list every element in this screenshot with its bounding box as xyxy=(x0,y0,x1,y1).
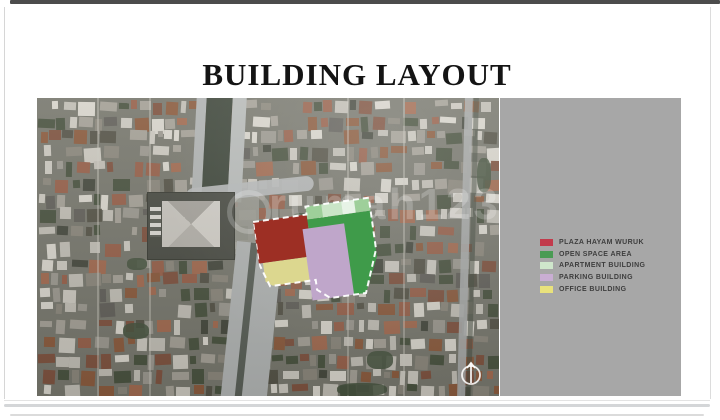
rooftop xyxy=(166,102,179,116)
rooftop xyxy=(278,130,283,141)
rooftop xyxy=(99,386,113,396)
legend-swatch-parking xyxy=(540,274,553,281)
rooftop xyxy=(391,371,398,378)
rooftop xyxy=(134,162,142,177)
rooftop xyxy=(113,179,130,191)
rooftop xyxy=(272,354,283,361)
legend-item-open-space: OPEN SPACE AREA xyxy=(540,249,645,261)
legend-panel: PLAZA HAYAM WURUKOPEN SPACE AREAAPARTMEN… xyxy=(500,98,681,396)
rooftop xyxy=(113,370,130,383)
rooftop xyxy=(130,130,147,140)
rooftop xyxy=(359,320,364,332)
rooftop xyxy=(119,103,129,109)
rooftop xyxy=(394,288,410,299)
rooftop xyxy=(180,130,194,137)
rooftop xyxy=(373,369,381,376)
rooftop xyxy=(170,163,180,173)
rooftop xyxy=(134,370,140,381)
rooftop xyxy=(99,369,112,376)
rooftop xyxy=(46,195,56,209)
rooftop xyxy=(414,163,425,175)
rooftop xyxy=(427,131,435,138)
mall-annex xyxy=(150,207,161,237)
rooftop xyxy=(126,273,133,280)
site-boundary-dashed-outline xyxy=(251,191,389,315)
rooftop xyxy=(59,337,75,353)
rooftop xyxy=(40,209,56,222)
rooftop xyxy=(203,337,209,345)
legend-label: PLAZA HAYAM WURUK xyxy=(559,239,644,246)
rooftop xyxy=(391,146,407,153)
rooftop xyxy=(129,384,142,396)
rooftop xyxy=(104,244,120,257)
rooftop xyxy=(273,337,284,350)
rooftop xyxy=(310,355,316,366)
rooftop xyxy=(290,148,297,160)
rooftop xyxy=(41,273,49,284)
legend-label: APARTMENT BUILDING xyxy=(559,262,645,269)
rooftop xyxy=(164,130,172,139)
rooftop xyxy=(427,242,443,254)
rooftop xyxy=(104,146,120,158)
legend-label: OFFICE BUILDING xyxy=(559,286,626,293)
rooftop xyxy=(165,119,176,129)
rooftop xyxy=(40,288,50,298)
rooftop xyxy=(320,321,331,334)
rooftop xyxy=(132,227,138,235)
rooftop xyxy=(400,354,412,366)
rooftop xyxy=(124,288,136,298)
rooftop xyxy=(427,302,441,311)
rooftop xyxy=(199,273,209,283)
rooftop xyxy=(330,371,346,381)
rooftop xyxy=(358,148,367,163)
rooftop xyxy=(361,162,375,175)
rooftop xyxy=(211,288,224,301)
rooftop xyxy=(360,372,371,383)
rooftop xyxy=(134,355,147,366)
rooftop xyxy=(53,288,61,302)
rooftop xyxy=(210,303,216,312)
rooftop xyxy=(318,355,325,368)
mall-roof xyxy=(162,201,220,247)
rooftop xyxy=(357,303,364,309)
rooftop xyxy=(378,130,388,137)
rooftop xyxy=(112,194,126,206)
page-separator-band xyxy=(4,404,710,407)
rooftop xyxy=(405,242,412,254)
rooftop xyxy=(173,130,179,141)
satellite-map: rumah123 xyxy=(37,98,499,396)
rooftop xyxy=(59,207,70,219)
rooftop xyxy=(270,384,276,393)
rooftop xyxy=(432,117,440,125)
rooftop xyxy=(176,386,190,396)
rooftop xyxy=(420,274,435,283)
rooftop xyxy=(43,370,56,385)
rooftop xyxy=(207,372,223,380)
rooftop xyxy=(100,302,116,317)
rooftop xyxy=(181,289,191,302)
rooftop xyxy=(312,147,329,161)
rooftop xyxy=(71,260,87,268)
rooftop xyxy=(103,210,114,221)
rooftop xyxy=(483,290,492,299)
rooftop xyxy=(66,162,72,177)
rooftop xyxy=(251,132,257,143)
rooftop xyxy=(285,339,295,346)
rooftop xyxy=(421,321,428,331)
rooftop xyxy=(37,119,54,129)
rooftop xyxy=(70,117,77,128)
rooftop xyxy=(473,386,490,396)
rooftop xyxy=(194,288,209,300)
rooftop xyxy=(164,179,174,192)
rooftop xyxy=(41,301,53,308)
rooftop xyxy=(351,356,364,366)
rooftop xyxy=(200,354,215,364)
rooftop xyxy=(380,147,388,158)
vegetation-patch xyxy=(337,383,387,396)
rooftop xyxy=(44,384,51,393)
rooftop xyxy=(78,304,88,311)
rooftop xyxy=(156,370,163,385)
rooftop xyxy=(124,241,130,251)
rooftop xyxy=(104,116,117,126)
rooftop xyxy=(425,146,432,154)
rooftop xyxy=(110,288,123,302)
rooftop xyxy=(118,387,127,395)
rooftop xyxy=(56,304,63,315)
north-arrow-icon xyxy=(458,361,484,387)
rooftop xyxy=(181,101,187,113)
rooftop xyxy=(361,117,368,132)
rooftop xyxy=(323,100,332,112)
rooftop xyxy=(435,148,452,161)
rooftop xyxy=(312,336,328,351)
rooftop xyxy=(179,261,188,274)
rooftop xyxy=(77,162,90,174)
legend-item-office: OFFICE BUILDING xyxy=(540,283,645,295)
rooftop xyxy=(100,131,116,143)
rooftop xyxy=(86,227,93,236)
rooftop xyxy=(414,259,425,274)
rooftop xyxy=(271,147,288,161)
rooftop xyxy=(261,103,271,110)
rooftop xyxy=(417,130,425,143)
rooftop xyxy=(181,274,196,283)
rooftop xyxy=(166,261,175,271)
rooftop xyxy=(407,384,418,391)
rooftop xyxy=(107,162,114,172)
rooftop xyxy=(256,161,274,176)
rooftop xyxy=(283,371,299,379)
rooftop xyxy=(73,209,85,222)
legend-item-plaza: PLAZA HAYAM WURUK xyxy=(540,237,645,249)
rooftop xyxy=(427,260,437,275)
rooftop xyxy=(212,275,228,283)
rooftop xyxy=(405,102,416,114)
rooftop xyxy=(253,147,258,157)
rooftop xyxy=(311,129,322,138)
rooftop xyxy=(169,337,185,349)
rooftop xyxy=(83,178,96,190)
rooftop xyxy=(139,146,148,156)
rooftop xyxy=(78,195,91,203)
rooftop xyxy=(410,288,426,297)
rooftop xyxy=(390,336,397,351)
rooftop xyxy=(174,320,180,335)
rooftop xyxy=(41,132,48,143)
rooftop xyxy=(314,102,322,111)
rooftop xyxy=(481,260,496,272)
rooftop xyxy=(355,339,363,350)
rooftop xyxy=(490,319,499,329)
rooftop xyxy=(374,339,387,349)
rooftop xyxy=(39,227,56,234)
rooftop xyxy=(481,101,491,111)
vegetation-patch xyxy=(127,258,147,270)
rooftop xyxy=(71,226,83,236)
rooftop xyxy=(159,289,166,297)
rooftop xyxy=(192,369,204,384)
rooftop xyxy=(407,131,416,141)
rooftop xyxy=(158,130,164,136)
rooftop xyxy=(433,320,445,333)
viewer-top-bar xyxy=(10,0,720,4)
rooftop xyxy=(484,131,498,144)
rooftop xyxy=(50,273,58,285)
rooftop xyxy=(475,242,484,257)
rooftop xyxy=(439,385,446,396)
rooftop xyxy=(70,319,86,329)
rooftop xyxy=(444,160,459,169)
street-line xyxy=(97,98,99,396)
rooftop xyxy=(72,180,80,188)
rooftop xyxy=(74,130,88,145)
rooftop xyxy=(449,354,456,363)
rooftop xyxy=(56,320,66,334)
rooftop xyxy=(40,321,52,327)
rooftop xyxy=(370,147,378,158)
rooftop xyxy=(300,354,309,361)
rooftop xyxy=(78,102,95,116)
rooftop xyxy=(100,354,110,369)
rooftop xyxy=(372,116,385,130)
rooftop xyxy=(42,260,53,272)
rooftop xyxy=(441,302,448,312)
rooftop xyxy=(137,338,147,352)
rooftop xyxy=(163,162,169,171)
rooftop xyxy=(378,304,395,315)
rooftop xyxy=(388,386,396,396)
rooftop xyxy=(66,146,82,155)
rooftop xyxy=(153,146,169,156)
rooftop xyxy=(102,273,111,282)
rooftop xyxy=(362,132,373,139)
rooftop xyxy=(428,338,442,350)
page-separator-line xyxy=(4,400,710,401)
rooftop xyxy=(297,130,307,139)
rooftop xyxy=(261,131,277,143)
rooftop xyxy=(494,386,499,394)
rooftop xyxy=(292,384,308,392)
rooftop xyxy=(293,162,299,174)
rooftop xyxy=(350,161,357,170)
rooftop xyxy=(368,303,376,312)
rooftop xyxy=(43,178,51,185)
rooftop xyxy=(420,119,427,129)
rooftop xyxy=(79,117,93,128)
legend-item-parking: PARKING BUILDING xyxy=(540,272,645,284)
rooftop xyxy=(253,117,270,127)
legend-label: OPEN SPACE AREA xyxy=(559,251,632,258)
rooftop xyxy=(166,386,175,396)
rooftop xyxy=(101,194,109,209)
rooftop xyxy=(491,161,499,172)
rooftop xyxy=(114,337,125,351)
rooftop xyxy=(64,385,80,396)
rooftop xyxy=(319,370,328,378)
rooftop xyxy=(451,103,462,110)
rooftop xyxy=(56,357,69,367)
rooftop xyxy=(57,226,68,235)
rooftop xyxy=(69,356,81,367)
rooftop xyxy=(286,355,298,364)
rooftop xyxy=(201,320,208,334)
legend-item-apartment: APARTMENT BUILDING xyxy=(540,260,645,272)
rooftop xyxy=(49,130,61,140)
rooftop xyxy=(271,116,278,127)
rooftop xyxy=(328,117,342,132)
rooftop xyxy=(375,100,390,109)
vegetation-patch xyxy=(123,323,149,339)
rooftop xyxy=(437,131,445,138)
rooftop xyxy=(173,145,181,152)
rooftop xyxy=(172,354,187,368)
rooftop xyxy=(366,339,373,349)
rooftop xyxy=(129,195,143,208)
site-plan-overlay xyxy=(251,191,389,315)
legend-swatch-plaza xyxy=(540,239,553,246)
rooftop xyxy=(313,386,321,396)
rooftop xyxy=(300,147,309,161)
rooftop xyxy=(52,101,59,109)
rooftop xyxy=(387,118,399,125)
rooftop xyxy=(385,261,399,272)
rooftop xyxy=(137,275,145,287)
rooftop xyxy=(448,242,458,253)
rooftop xyxy=(320,118,327,128)
next-page-edge xyxy=(10,414,704,416)
rooftop xyxy=(415,355,429,370)
canal-median xyxy=(233,242,258,396)
rooftop xyxy=(47,244,57,259)
rooftop xyxy=(420,386,434,396)
rooftop xyxy=(279,384,288,393)
rooftop xyxy=(61,129,73,138)
rooftop xyxy=(329,162,345,169)
rooftop xyxy=(213,321,218,329)
rooftop xyxy=(56,118,65,130)
rooftop xyxy=(55,180,68,193)
rooftop xyxy=(479,274,490,288)
rooftop xyxy=(112,275,122,283)
rooftop xyxy=(130,100,136,109)
rooftop xyxy=(190,356,196,364)
rooftop xyxy=(195,303,208,317)
rooftop xyxy=(45,161,53,175)
legend-label: PARKING BUILDING xyxy=(559,274,633,281)
rooftop xyxy=(445,339,456,351)
rooftop xyxy=(157,320,172,332)
rooftop xyxy=(384,321,400,335)
rooftop xyxy=(206,386,212,396)
rooftop xyxy=(208,260,224,270)
rooftop xyxy=(60,242,70,257)
rooftop xyxy=(403,118,418,127)
rooftop xyxy=(400,338,411,345)
rooftop xyxy=(69,273,83,287)
rooftop xyxy=(430,355,445,365)
rooftop xyxy=(359,100,372,114)
rooftop xyxy=(435,100,448,107)
rooftop xyxy=(403,321,417,328)
rooftop xyxy=(319,163,328,174)
rooftop xyxy=(121,118,132,128)
rooftop xyxy=(44,145,51,157)
rooftop xyxy=(78,337,91,347)
rooftop xyxy=(411,338,426,349)
rooftop xyxy=(172,372,189,380)
rooftop xyxy=(384,372,390,378)
rooftop xyxy=(301,161,317,176)
rooftop xyxy=(428,290,445,302)
rooftop xyxy=(488,356,499,369)
rooftop xyxy=(38,354,55,363)
rooftop xyxy=(407,274,416,283)
slide: BUILDING LAYOUT xyxy=(0,0,720,420)
rooftop xyxy=(439,274,453,283)
rooftop xyxy=(421,370,432,378)
rooftop xyxy=(329,354,336,364)
rooftop xyxy=(263,145,271,152)
rooftop xyxy=(488,303,498,316)
legend-swatch-apartment xyxy=(540,262,553,269)
rooftop xyxy=(368,320,379,330)
rooftop xyxy=(145,162,159,176)
rooftop xyxy=(414,303,425,317)
rooftop xyxy=(302,369,316,380)
rooftop xyxy=(100,289,107,302)
rooftop xyxy=(123,207,140,218)
rooftop xyxy=(284,130,294,142)
vegetation-patch xyxy=(367,351,393,369)
rooftop xyxy=(297,336,310,346)
mall-building xyxy=(147,192,235,260)
rooftop xyxy=(99,101,116,111)
rooftop xyxy=(99,320,112,326)
page-title: BUILDING LAYOUT xyxy=(0,57,714,93)
legend-swatch-open-space xyxy=(540,251,553,258)
rooftop xyxy=(81,370,96,385)
rooftop xyxy=(440,116,457,123)
rooftop xyxy=(149,338,165,352)
legend: PLAZA HAYAM WURUKOPEN SPACE AREAAPARTMEN… xyxy=(540,237,645,295)
rooftop xyxy=(412,147,425,156)
rooftop xyxy=(44,337,55,347)
rooftop xyxy=(114,354,129,362)
